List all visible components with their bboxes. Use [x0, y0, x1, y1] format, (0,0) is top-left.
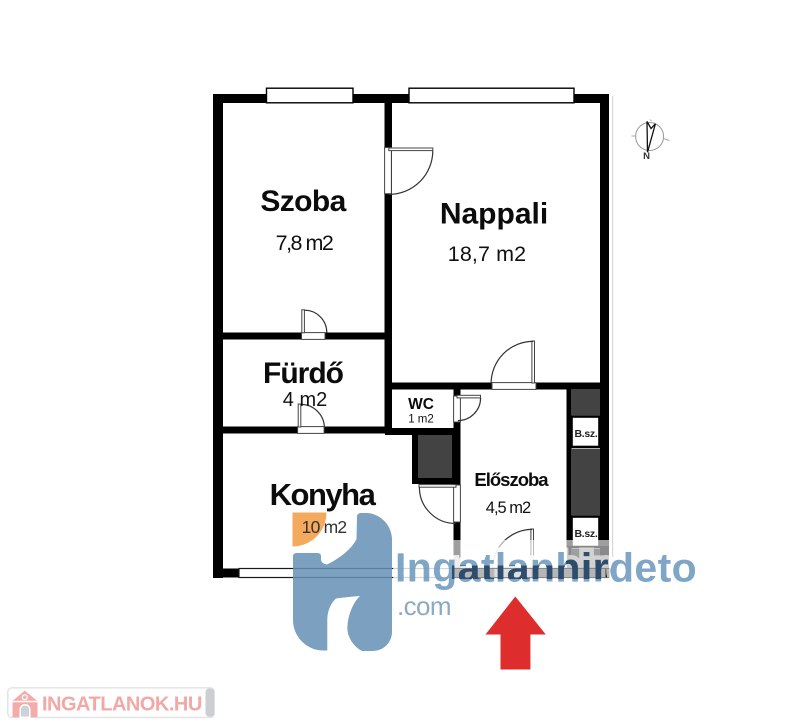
svg-text:18,7 m2: 18,7 m2 [448, 242, 526, 266]
svg-text:4,5 m2: 4,5 m2 [486, 499, 531, 517]
svg-text:1 m2: 1 m2 [408, 414, 434, 426]
svg-text:7,8 m2: 7,8 m2 [276, 231, 333, 255]
svg-text:Szoba: Szoba [260, 185, 346, 218]
svg-text:N: N [643, 151, 650, 162]
svg-text:INGATLANOK.HU: INGATLANOK.HU [42, 694, 202, 716]
svg-text:Nappali: Nappali [440, 198, 548, 231]
svg-text:.com: .com [397, 591, 451, 621]
svg-text:Konyha: Konyha [270, 477, 377, 512]
svg-text:B.sz.: B.sz. [574, 528, 597, 540]
svg-text:10 m2: 10 m2 [302, 517, 347, 537]
svg-text:4 m2: 4 m2 [283, 389, 327, 411]
svg-text:Előszoba: Előszoba [474, 469, 549, 490]
svg-text:B.sz.: B.sz. [574, 428, 597, 440]
svg-text:Fürdő: Fürdő [263, 357, 344, 390]
svg-text:WC: WC [408, 396, 434, 413]
